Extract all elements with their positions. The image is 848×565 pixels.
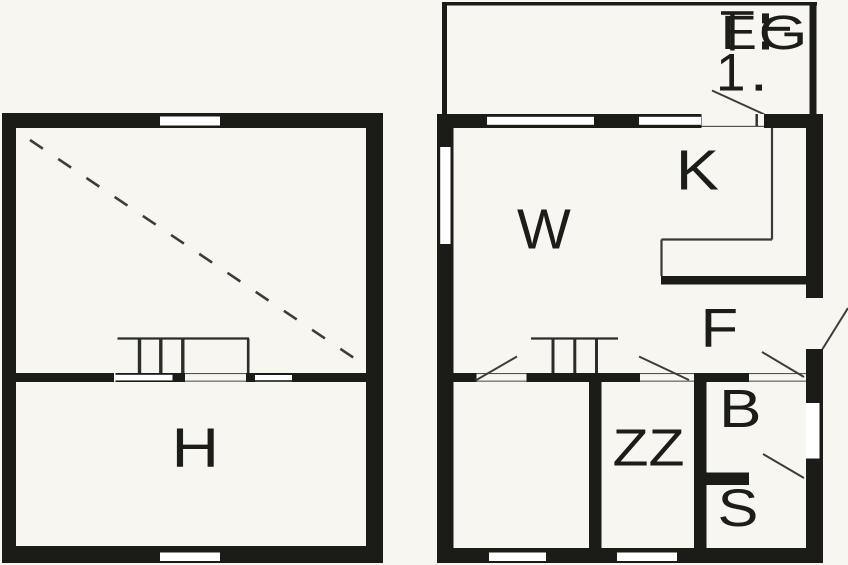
svg-text:B: B — [719, 379, 762, 439]
svg-text:F: F — [701, 297, 739, 359]
svg-text:H: H — [172, 416, 220, 479]
svg-text:S: S — [718, 479, 759, 538]
svg-text:W: W — [517, 197, 571, 261]
svg-text:K: K — [676, 139, 720, 202]
svg-text:ZZ: ZZ — [613, 420, 685, 478]
